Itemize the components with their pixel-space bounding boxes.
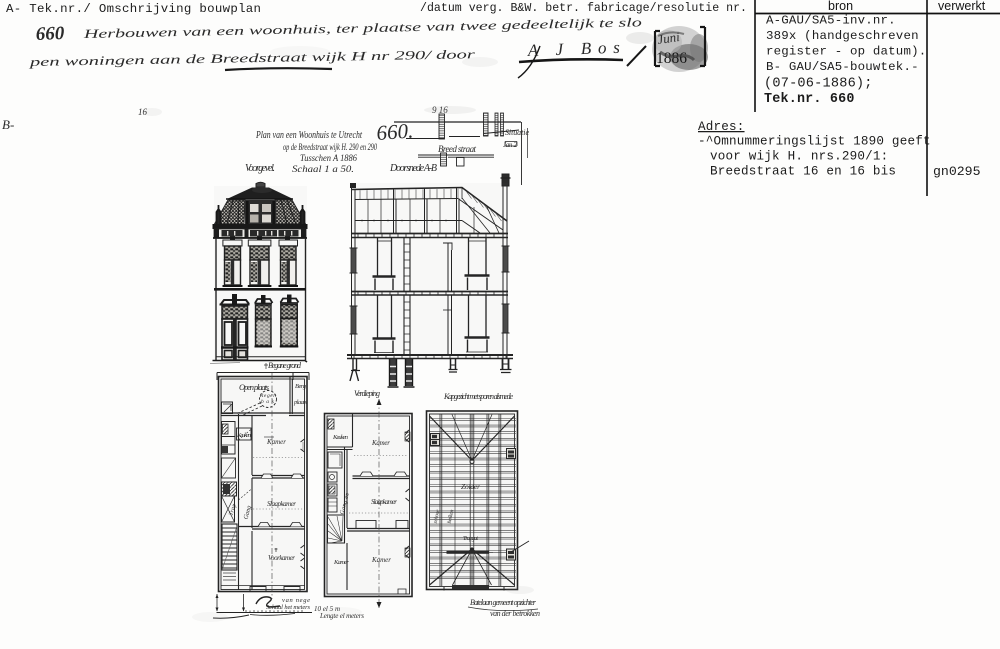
svg-text:Schaal het meters: Schaal het meters <box>266 604 310 611</box>
svg-text:register - op datum).: register - op datum). <box>766 45 926 59</box>
svg-text:Verdieping: Verdieping <box>354 389 380 398</box>
svg-text:Breedstraat 16 en 16 bis: Breedstraat 16 en 16 bis <box>710 165 896 179</box>
svg-text:Adres:: Adres: <box>698 120 745 134</box>
svg-text:/datum verg. B&W. betr. fabric: /datum verg. B&W. betr. fabricage/resolu… <box>420 2 747 15</box>
svg-text:-^Omnummeringslijst 1890 geeft: -^Omnummeringslijst 1890 geeft <box>698 135 931 149</box>
svg-text:389x (handgeschreven: 389x (handgeschreven <box>766 29 919 43</box>
svg-text:B- GAU/SA5-bouwtek.-: B- GAU/SA5-bouwtek.- <box>766 60 919 74</box>
svg-text:Begane grond: Begane grond <box>268 361 302 370</box>
svg-text:Breed straat: Breed straat <box>438 144 476 154</box>
svg-text:verwerkt: verwerkt <box>938 0 986 13</box>
svg-text:van nege: van nege <box>282 597 310 604</box>
svg-text:Plan van een Woonhuis te Utrec: Plan van een Woonhuis te Utrecht <box>255 129 362 141</box>
svg-text:(07-06-1886);: (07-06-1886); <box>764 77 873 92</box>
svg-text:Tusschen A 1886: Tusschen A 1886 <box>300 153 357 163</box>
svg-text:Doorsnede A-B: Doorsnede A-B <box>389 163 437 174</box>
svg-text:Tek.nr. 660: Tek.nr. 660 <box>764 92 855 107</box>
svg-text:Jan 2: Jan 2 <box>503 141 518 149</box>
svg-text:Voorgevel.: Voorgevel. <box>245 163 275 174</box>
svg-text:Schaal 1 a 50.: Schaal 1 a 50. <box>292 164 354 174</box>
svg-text:voor wijk H. nrs.290/1:: voor wijk H. nrs.290/1: <box>710 150 888 164</box>
svg-text:bron: bron <box>828 0 853 13</box>
svg-text:B-: B- <box>2 117 14 132</box>
svg-text:A- Tek.nr./ Omschrijving bouwp: A- Tek.nr./ Omschrijving bouwplan <box>6 2 261 16</box>
svg-text:Batelaan gemeent opzichter: Batelaan gemeent opzichter <box>470 598 537 607</box>
svg-text:Kapgezicht met sporen alsmede: Kapgezicht met sporen alsmede <box>443 392 513 401</box>
svg-text:A-GAU/SA5-inv.nr.: A-GAU/SA5-inv.nr. <box>766 14 896 28</box>
svg-text:Situatie: Situatie <box>505 128 529 137</box>
svg-text:pen woningen aan de Breedstraa: pen woningen aan de Breedstraat wijk H n… <box>28 47 475 69</box>
svg-text:gn0295: gn0295 <box>933 164 981 179</box>
svg-text:Herbouwen van een woonhuis, te: Herbouwen van een woonhuis, ter plaatse … <box>82 15 642 41</box>
svg-text:660: 660 <box>35 23 65 45</box>
svg-text:op de Breedstraat wijk H. 290: op de Breedstraat wijk H. 290 en 290 <box>283 142 377 152</box>
svg-text:A J Bos: A J Bos <box>526 38 620 60</box>
